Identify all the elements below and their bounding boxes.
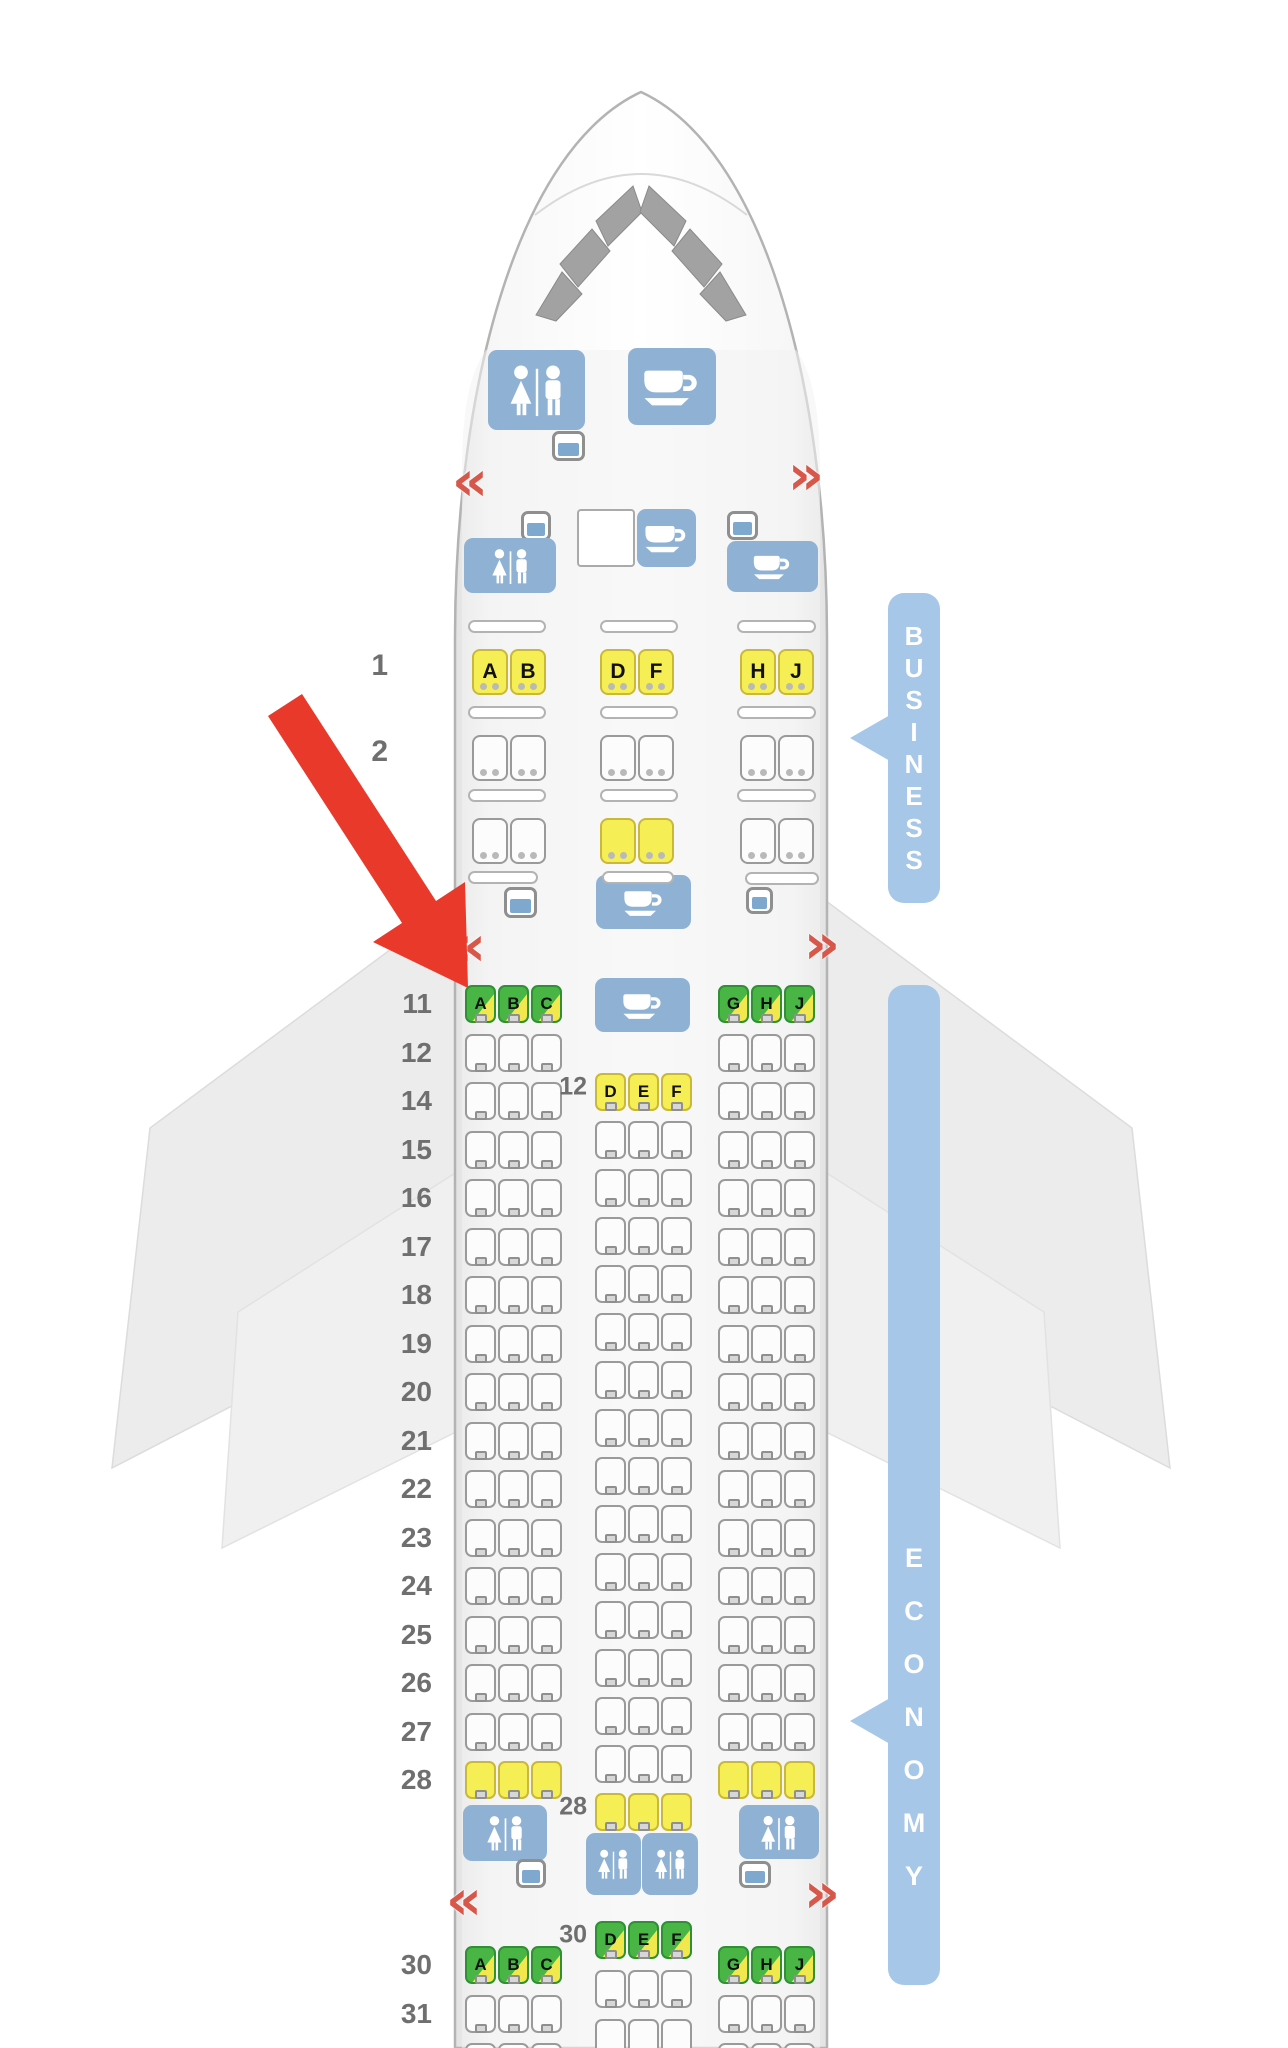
seat-center-row6-2[interactable]	[628, 1313, 659, 1351]
seat-row17-left-3[interactable]	[531, 1228, 562, 1266]
seat-aft-row3-left-1[interactable]	[465, 2043, 496, 2048]
seat-row18-left-3[interactable]	[531, 1276, 562, 1314]
seat-row19-left-2[interactable]	[498, 1325, 529, 1363]
seat-center-row9-3[interactable]	[661, 1457, 692, 1495]
seat-aft-center-row3-2[interactable]	[628, 2019, 659, 2048]
seat-row24-left-2[interactable]	[498, 1567, 529, 1605]
lavatory	[464, 538, 556, 593]
console-bar	[600, 706, 678, 719]
seat-row12-left-1[interactable]	[465, 1034, 496, 1072]
seat-row17-left-2[interactable]	[498, 1228, 529, 1266]
banner-letter: E	[905, 1545, 923, 1572]
seat-row20-right-2[interactable]	[751, 1373, 782, 1411]
seat-row18-right-2[interactable]	[751, 1276, 782, 1314]
seat-row20-left-2[interactable]	[498, 1373, 529, 1411]
galley	[637, 509, 696, 567]
seat-row25-left-2[interactable]	[498, 1616, 529, 1654]
seat-row19-right-2[interactable]	[751, 1325, 782, 1363]
seat-center-row4-2[interactable]	[628, 1217, 659, 1255]
galley	[628, 348, 716, 425]
seat-row16-left-1[interactable]	[465, 1179, 496, 1217]
banner-letter: N	[904, 1704, 924, 1731]
seat-1H[interactable]: H	[740, 649, 776, 695]
seat-row12-right-1[interactable]	[718, 1034, 749, 1072]
seat-row15-right-2[interactable]	[751, 1131, 782, 1169]
seat-center-row14-2[interactable]	[628, 1697, 659, 1735]
row-number-24: 24	[376, 1572, 432, 1600]
seat-center-row7-1[interactable]	[595, 1361, 626, 1399]
seat-row19-right-3[interactable]	[784, 1325, 815, 1363]
seat-row25-left-3[interactable]	[531, 1616, 562, 1654]
seat-row26-left-2[interactable]	[498, 1664, 529, 1702]
galley-counter	[577, 509, 635, 567]
seat-letter: H	[760, 994, 772, 1014]
seat-row2-group2-2[interactable]	[638, 735, 674, 781]
seat-center-row16-2[interactable]	[628, 1793, 659, 1831]
seat-center-row14-1[interactable]	[595, 1697, 626, 1735]
row-number-27: 27	[376, 1718, 432, 1746]
seat-letter: F	[671, 1930, 681, 1950]
exit-chevron-icon: «	[446, 1873, 482, 1929]
exit-door-right-1: »	[784, 458, 828, 504]
seat-row21-left-3[interactable]	[531, 1422, 562, 1460]
seat-aft-center-row2-2[interactable]	[628, 1970, 659, 2008]
seat-row23-right-3[interactable]	[784, 1519, 815, 1557]
galley-icon	[619, 883, 669, 922]
lavatory	[739, 1805, 819, 1859]
seat-row18-right-3[interactable]	[784, 1276, 815, 1314]
seat-row26-left-1[interactable]	[465, 1664, 496, 1702]
seat-30J[interactable]: J	[784, 1946, 815, 1984]
seat-letter: H	[760, 1955, 772, 1975]
seat-aft-row3-left-2[interactable]	[498, 2043, 529, 2048]
seat-1J[interactable]: J	[778, 649, 814, 695]
seat-row19-right-1[interactable]	[718, 1325, 749, 1363]
row-number-30: 30	[376, 1951, 432, 1979]
row-number-28: 28	[376, 1766, 432, 1794]
seat-aft-center-row2-3[interactable]	[661, 1970, 692, 2008]
seat-letter: C	[540, 1955, 552, 1975]
seat-row28-left-3[interactable]	[531, 1761, 562, 1799]
seat-center-row6-3[interactable]	[661, 1313, 692, 1351]
seat-row25-right-3[interactable]	[784, 1616, 815, 1654]
seat-30A[interactable]: A	[465, 1946, 496, 1984]
banner-letter: E	[905, 783, 922, 809]
banner-letter: C	[904, 1598, 924, 1625]
row-number-22: 22	[376, 1475, 432, 1503]
banner-letter: N	[905, 751, 924, 777]
seat-row15-left-1[interactable]	[465, 1131, 496, 1169]
seat-center-row15-2[interactable]	[628, 1745, 659, 1783]
closet-icon	[727, 511, 758, 540]
seat-letter: J	[795, 994, 804, 1014]
seat-row16-left-2[interactable]	[498, 1179, 529, 1217]
row-number-15: 15	[376, 1136, 432, 1164]
seat-center-row14-3[interactable]	[661, 1697, 692, 1735]
seat-row27-left-1[interactable]	[465, 1713, 496, 1751]
seat-row3-group2-1[interactable]	[600, 818, 636, 864]
seat-row15-left-2[interactable]	[498, 1131, 529, 1169]
business-class-banner: BUSINESS	[888, 593, 940, 903]
closet-icon	[504, 887, 537, 918]
seat-1D[interactable]: D	[600, 649, 636, 695]
seat-row28-left-2[interactable]	[498, 1761, 529, 1799]
console-bar	[737, 706, 816, 719]
seat-aft-row3-right-1[interactable]	[718, 2043, 749, 2048]
seat-row20-right-1[interactable]	[718, 1373, 749, 1411]
seat-30B[interactable]: B	[498, 1946, 529, 1984]
seat-row22-right-3[interactable]	[784, 1470, 815, 1508]
seat-11B[interactable]: B	[498, 985, 529, 1023]
seat-row23-right-2[interactable]	[751, 1519, 782, 1557]
seat-11H[interactable]: H	[751, 985, 782, 1023]
seat-letter: H	[750, 660, 765, 684]
seat-letter: D	[604, 1082, 616, 1102]
seat-aft-row2-right-3[interactable]	[784, 1995, 815, 2033]
banner-letter: O	[903, 1757, 924, 1784]
seat-row21-right-1[interactable]	[718, 1422, 749, 1460]
seat-row18-left-1[interactable]	[465, 1276, 496, 1314]
seat-row3-group1-2[interactable]	[510, 818, 546, 864]
seat-30F[interactable]: F	[661, 1921, 692, 1959]
seat-center-row11-2[interactable]	[628, 1553, 659, 1591]
galley	[727, 541, 818, 592]
seat-center-row12-1[interactable]	[595, 1601, 626, 1639]
seat-30G[interactable]: G	[718, 1946, 749, 1984]
seat-row24-left-3[interactable]	[531, 1567, 562, 1605]
exit-door-right-3: »	[800, 1876, 844, 1922]
seat-row16-right-1[interactable]	[718, 1179, 749, 1217]
seat-row16-left-3[interactable]	[531, 1179, 562, 1217]
seat-row23-left-1[interactable]	[465, 1519, 496, 1557]
seat-row26-right-3[interactable]	[784, 1664, 815, 1702]
exit-chevron-icon: »	[788, 448, 824, 504]
seat-center-row8-2[interactable]	[628, 1409, 659, 1447]
galley	[595, 978, 690, 1032]
exit-chevron-icon: »	[804, 1866, 840, 1922]
seat-center-row10-3[interactable]	[661, 1505, 692, 1543]
seat-row27-right-2[interactable]	[751, 1713, 782, 1751]
seat-center-row7-2[interactable]	[628, 1361, 659, 1399]
seat-row20-left-3[interactable]	[531, 1373, 562, 1411]
exit-chevron-icon: «	[452, 454, 488, 510]
seat-row21-left-1[interactable]	[465, 1422, 496, 1460]
seat-center-row4-3[interactable]	[661, 1217, 692, 1255]
seat-row23-left-3[interactable]	[531, 1519, 562, 1557]
seat-aft-row2-left-1[interactable]	[465, 1995, 496, 2033]
seat-row22-left-2[interactable]	[498, 1470, 529, 1508]
seat-letter: C	[540, 994, 552, 1014]
economy-banner-arrow-icon	[850, 1698, 890, 1744]
seat-center-row2-3[interactable]	[661, 1121, 692, 1159]
seat-row3-group2-2[interactable]	[638, 818, 674, 864]
banner-letter: S	[905, 815, 922, 841]
exit-door-left-1: «	[448, 464, 492, 510]
seat-center-row15-3[interactable]	[661, 1745, 692, 1783]
closet-icon	[552, 431, 585, 461]
lavatory	[586, 1833, 641, 1895]
exit-door-left-3: «	[442, 1883, 486, 1929]
cabin-layer: «»«»«»1ABDFHJ2311AGBHCJ12141516171819202…	[0, 0, 1288, 2048]
seat-aft-center-row3-1[interactable]	[595, 2019, 626, 2048]
seat-letter: G	[727, 1955, 740, 1975]
seat-row20-left-1[interactable]	[465, 1373, 496, 1411]
seat-row24-right-1[interactable]	[718, 1567, 749, 1605]
seat-row14-left-1[interactable]	[465, 1082, 496, 1120]
seat-letter: G	[727, 994, 740, 1014]
seat-center-row16-1[interactable]	[595, 1793, 626, 1831]
seat-aft-row2-right-2[interactable]	[751, 1995, 782, 2033]
seat-30H[interactable]: H	[751, 1946, 782, 1984]
seat-row21-right-2[interactable]	[751, 1422, 782, 1460]
lavatory-icon	[480, 1813, 531, 1853]
seat-row17-left-1[interactable]	[465, 1228, 496, 1266]
seat-center-row3-3[interactable]	[661, 1169, 692, 1207]
banner-letter: Y	[905, 1863, 923, 1890]
seat-row26-right-1[interactable]	[718, 1664, 749, 1702]
seat-aft-row2-left-3[interactable]	[531, 1995, 562, 2033]
seat-row22-right-1[interactable]	[718, 1470, 749, 1508]
seat-row3-group3-2[interactable]	[778, 818, 814, 864]
seat-row16-right-3[interactable]	[784, 1179, 815, 1217]
exit-chevron-icon: »	[804, 917, 840, 973]
row-number-center-30: 30	[535, 1923, 587, 1948]
seat-1B[interactable]: B	[510, 649, 546, 695]
seat-letter: B	[520, 660, 535, 684]
seat-row2-group3-2[interactable]	[778, 735, 814, 781]
banner-letter: O	[903, 1651, 924, 1678]
seat-row14-right-2[interactable]	[751, 1082, 782, 1120]
seat-row2-group3-1[interactable]	[740, 735, 776, 781]
seat-center-row13-3[interactable]	[661, 1649, 692, 1687]
seat-center-row10-1[interactable]	[595, 1505, 626, 1543]
aircraft-seat-map: «»«»«»1ABDFHJ2311AGBHCJ12141516171819202…	[0, 0, 1288, 2048]
row-number-23: 23	[376, 1524, 432, 1552]
console-bar	[468, 620, 546, 633]
seat-letter: D	[610, 660, 625, 684]
seat-row20-right-3[interactable]	[784, 1373, 815, 1411]
seat-row3-group3-1[interactable]	[740, 818, 776, 864]
seat-row27-right-3[interactable]	[784, 1713, 815, 1751]
seat-letter: A	[474, 1955, 486, 1975]
seat-letter: B	[507, 994, 519, 1014]
galley-icon	[637, 359, 707, 414]
seat-11C[interactable]: C	[531, 985, 562, 1023]
seat-row14-right-1[interactable]	[718, 1082, 749, 1120]
seat-letter: F	[650, 660, 663, 684]
seat-letter: B	[507, 1955, 519, 1975]
seat-aft-row3-right-3[interactable]	[784, 2043, 815, 2048]
lavatory-icon	[754, 1813, 804, 1852]
seat-center-row5-3[interactable]	[661, 1265, 692, 1303]
seat-row18-left-2[interactable]	[498, 1276, 529, 1314]
economy-class-banner: ECONOMY	[888, 985, 940, 1985]
console-bar	[737, 789, 816, 802]
seat-row15-right-3[interactable]	[784, 1131, 815, 1169]
row-number-12: 12	[376, 1039, 432, 1067]
seat-center-row10-2[interactable]	[628, 1505, 659, 1543]
lavatory-icon	[485, 546, 536, 586]
seat-row2-group2-1[interactable]	[600, 735, 636, 781]
seat-row26-left-3[interactable]	[531, 1664, 562, 1702]
banner-letter: U	[905, 655, 924, 681]
seat-center-row6-1[interactable]	[595, 1313, 626, 1351]
seat-center-row15-1[interactable]	[595, 1745, 626, 1783]
seat-center-row5-1[interactable]	[595, 1265, 626, 1303]
seat-row22-left-3[interactable]	[531, 1470, 562, 1508]
seat-aft-row2-left-2[interactable]	[498, 1995, 529, 2033]
seat-row25-right-1[interactable]	[718, 1616, 749, 1654]
seat-center-row3-2[interactable]	[628, 1169, 659, 1207]
seat-row27-left-3[interactable]	[531, 1713, 562, 1751]
seat-center-row3-1[interactable]	[595, 1169, 626, 1207]
seat-center-row11-3[interactable]	[661, 1553, 692, 1591]
closet-icon	[516, 1859, 546, 1888]
seat-center-row2-1[interactable]	[595, 1121, 626, 1159]
seat-row26-right-2[interactable]	[751, 1664, 782, 1702]
banner-letter: S	[905, 687, 922, 713]
seat-center-row4-1[interactable]	[595, 1217, 626, 1255]
seat-letter: E	[638, 1082, 649, 1102]
banner-letter: I	[910, 719, 917, 745]
seat-11G[interactable]: G	[718, 985, 749, 1023]
highlight-arrow	[250, 660, 490, 1000]
seat-30E[interactable]: E	[628, 1921, 659, 1959]
seat-row12-left-3[interactable]	[531, 1034, 562, 1072]
galley-icon	[749, 548, 796, 585]
seat-row12-right-3[interactable]	[784, 1034, 815, 1072]
seat-letter: J	[795, 1955, 804, 1975]
seat-center-row9-2[interactable]	[628, 1457, 659, 1495]
seat-aft-row2-right-1[interactable]	[718, 1995, 749, 2033]
seat-30D[interactable]: D	[595, 1921, 626, 1959]
seat-row15-left-3[interactable]	[531, 1131, 562, 1169]
seat-row15-right-1[interactable]	[718, 1131, 749, 1169]
seat-row25-right-2[interactable]	[751, 1616, 782, 1654]
seat-row21-left-2[interactable]	[498, 1422, 529, 1460]
seat-center-row8-1[interactable]	[595, 1409, 626, 1447]
seat-center-row8-3[interactable]	[661, 1409, 692, 1447]
row-number-31: 31	[376, 2000, 432, 2028]
seat-letter: F	[671, 1082, 681, 1102]
console-bar	[745, 872, 819, 885]
seat-row17-right-1[interactable]	[718, 1228, 749, 1266]
row-number-center-28: 28	[535, 1795, 587, 1820]
seat-center-row12-3[interactable]	[661, 1601, 692, 1639]
seat-row21-right-3[interactable]	[784, 1422, 815, 1460]
seat-row12-right-2[interactable]	[751, 1034, 782, 1072]
seat-row16-right-2[interactable]	[751, 1179, 782, 1217]
seat-center-row5-2[interactable]	[628, 1265, 659, 1303]
row-number-17: 17	[376, 1233, 432, 1261]
seat-row24-left-1[interactable]	[465, 1567, 496, 1605]
seat-row19-left-3[interactable]	[531, 1325, 562, 1363]
seat-row23-left-2[interactable]	[498, 1519, 529, 1557]
seat-row14-right-3[interactable]	[784, 1082, 815, 1120]
seat-row27-right-1[interactable]	[718, 1713, 749, 1751]
row-number-25: 25	[376, 1621, 432, 1649]
seat-row27-left-2[interactable]	[498, 1713, 529, 1751]
console-bar	[737, 620, 816, 633]
seat-row12-left-2[interactable]	[498, 1034, 529, 1072]
seat-row17-right-3[interactable]	[784, 1228, 815, 1266]
row-number-19: 19	[376, 1330, 432, 1358]
seat-row22-right-2[interactable]	[751, 1470, 782, 1508]
seat-center-row2-2[interactable]	[628, 1121, 659, 1159]
console-bar	[600, 620, 678, 633]
seat-row24-right-2[interactable]	[751, 1567, 782, 1605]
row-number-14: 14	[376, 1087, 432, 1115]
seat-aft-row3-right-2[interactable]	[751, 2043, 782, 2048]
seat-row2-group1-2[interactable]	[510, 735, 546, 781]
lavatory	[488, 350, 585, 430]
seat-row28-right-1[interactable]	[718, 1761, 749, 1799]
seat-30C[interactable]: C	[531, 1946, 562, 1984]
seat-row19-left-1[interactable]	[465, 1325, 496, 1363]
seat-center-row13-2[interactable]	[628, 1649, 659, 1687]
console-bar	[602, 871, 674, 884]
seat-center-row7-3[interactable]	[661, 1361, 692, 1399]
row-number-center-12: 12	[535, 1075, 587, 1100]
galley-icon	[618, 986, 668, 1025]
seat-center-row12-2[interactable]	[628, 1601, 659, 1639]
seat-letter: D	[604, 1930, 616, 1950]
seat-center-row16-3[interactable]	[661, 1793, 692, 1831]
seat-center-row13-1[interactable]	[595, 1649, 626, 1687]
seat-aft-center-row2-1[interactable]	[595, 1970, 626, 2008]
seat-12E[interactable]: E	[628, 1073, 659, 1111]
row-number-18: 18	[376, 1281, 432, 1309]
seat-row28-right-3[interactable]	[784, 1761, 815, 1799]
row-number-26: 26	[376, 1669, 432, 1697]
seat-row23-right-1[interactable]	[718, 1519, 749, 1557]
seat-row18-right-1[interactable]	[718, 1276, 749, 1314]
banner-letter: M	[903, 1810, 926, 1837]
galley-icon	[640, 517, 693, 559]
console-bar	[600, 789, 678, 802]
seat-aft-center-row3-3[interactable]	[661, 2019, 692, 2048]
banner-letter: B	[905, 623, 924, 649]
seat-aft-row3-left-3[interactable]	[531, 2043, 562, 2048]
seat-row28-right-2[interactable]	[751, 1761, 782, 1799]
seat-1F[interactable]: F	[638, 649, 674, 695]
seat-letter: J	[790, 660, 802, 684]
closet-icon	[521, 511, 551, 541]
lavatory	[642, 1833, 698, 1895]
seat-center-row9-1[interactable]	[595, 1457, 626, 1495]
row-number-20: 20	[376, 1378, 432, 1406]
row-number-21: 21	[376, 1427, 432, 1455]
seat-row28-left-1[interactable]	[465, 1761, 496, 1799]
lavatory-icon	[500, 361, 574, 419]
banner-letter: S	[905, 847, 922, 873]
seat-row24-right-3[interactable]	[784, 1567, 815, 1605]
business-banner-arrow-icon	[850, 715, 890, 761]
seat-row14-left-2[interactable]	[498, 1082, 529, 1120]
seat-row22-left-1[interactable]	[465, 1470, 496, 1508]
seat-row17-right-2[interactable]	[751, 1228, 782, 1266]
closet-icon	[739, 1861, 771, 1888]
row-number-16: 16	[376, 1184, 432, 1212]
seat-12F[interactable]: F	[661, 1073, 692, 1111]
closet-icon	[746, 887, 773, 914]
seat-letter: E	[638, 1930, 649, 1950]
seat-12D[interactable]: D	[595, 1073, 626, 1111]
lavatory-icon	[592, 1847, 635, 1881]
seat-11J[interactable]: J	[784, 985, 815, 1023]
seat-row25-left-1[interactable]	[465, 1616, 496, 1654]
seat-center-row11-1[interactable]	[595, 1553, 626, 1591]
